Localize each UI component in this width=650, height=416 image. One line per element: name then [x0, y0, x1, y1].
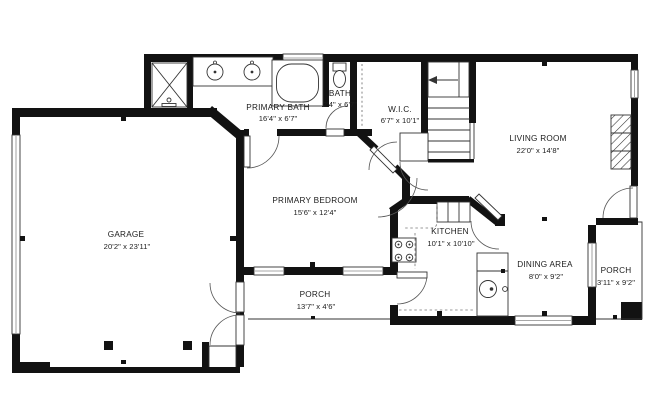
svg-text:GARAGE: GARAGE — [108, 230, 145, 239]
garage-door-icon — [12, 135, 20, 334]
bathtub-icon — [272, 60, 323, 106]
room-label-garage: GARAGE 20'2" x 23'11" — [104, 230, 151, 251]
window-icon — [254, 267, 284, 275]
window-icon — [631, 70, 638, 98]
svg-text:PRIMARY BEDROOM: PRIMARY BEDROOM — [272, 196, 357, 205]
svg-text:10'1" x 10'10": 10'1" x 10'10" — [427, 239, 474, 248]
svg-text:DINING AREA: DINING AREA — [517, 260, 573, 269]
fireplace-icon — [611, 115, 631, 169]
svg-text:PORCH: PORCH — [300, 290, 331, 299]
under-stair-closet — [400, 133, 428, 161]
porch-outline — [209, 222, 642, 367]
svg-text:22'0" x 14'8": 22'0" x 14'8" — [517, 146, 560, 155]
door-garage-porch — [210, 282, 244, 313]
toilet-icon — [333, 63, 346, 88]
svg-text:13'7" x 4'6": 13'7" x 4'6" — [297, 302, 336, 311]
room-label-kitchen: KITCHEN 10'1" x 10'10" — [427, 227, 474, 248]
svg-text:LIVING ROOM: LIVING ROOM — [509, 134, 566, 143]
room-labels: PRIMARY BATH 16'4" x 6'7" BATH 2'4" x 6'… — [104, 89, 636, 311]
svg-text:KITCHEN: KITCHEN — [431, 227, 469, 236]
svg-text:BATH: BATH — [329, 89, 351, 98]
pantry-icon — [437, 202, 470, 222]
room-label-living-room: LIVING ROOM 22'0" x 14'8" — [509, 134, 566, 155]
porch-post-icon — [621, 302, 642, 320]
shower-icon — [152, 63, 187, 107]
window-icon — [343, 267, 383, 275]
svg-text:8'0" x 9'2": 8'0" x 9'2" — [529, 272, 564, 281]
room-label-porch-rear: PORCH 13'7" x 4'6" — [297, 290, 336, 311]
svg-text:3'11" x 9'2": 3'11" x 9'2" — [597, 278, 635, 287]
window-icon — [515, 316, 572, 325]
room-label-primary-bedroom: PRIMARY BEDROOM 15'6" x 12'4" — [272, 196, 357, 217]
room-label-porch-side: PORCH 3'11" x 9'2" — [597, 266, 635, 287]
door-garage-stoop — [210, 315, 244, 345]
room-label-dining-area: DINING AREA 8'0" x 9'2" — [517, 260, 573, 281]
garage-post-icon — [104, 341, 113, 350]
door-bedroom-bath — [244, 136, 279, 168]
window-icon — [588, 243, 596, 287]
room-label-primary-bath: PRIMARY BATH 16'4" x 6'7" — [246, 103, 310, 123]
kitchen-sink-icon — [477, 253, 508, 316]
svg-text:16'4" x 6'7": 16'4" x 6'7" — [259, 114, 298, 123]
stoop-outline — [209, 346, 236, 367]
svg-text:W.I.C.: W.I.C. — [388, 105, 412, 114]
svg-text:20'2" x 23'11": 20'2" x 23'11" — [104, 242, 151, 251]
double-vanity-icon — [193, 57, 273, 86]
svg-text:PRIMARY BATH: PRIMARY BATH — [246, 103, 310, 112]
door-living-porch — [603, 186, 637, 218]
floor-plan: PRIMARY BATH 16'4" x 6'7" BATH 2'4" x 6'… — [0, 0, 650, 416]
door-kitchen-porch — [397, 272, 427, 304]
room-label-wic: W.I.C. 6'7" x 10'1" — [381, 105, 420, 125]
garage-post-icon — [183, 341, 192, 350]
svg-text:2'4" x 6'7": 2'4" x 6'7" — [323, 100, 358, 109]
range-icon — [392, 238, 416, 262]
svg-text:6'7" x 10'1": 6'7" x 10'1" — [381, 116, 420, 125]
svg-text:15'6" x 12'4": 15'6" x 12'4" — [294, 208, 337, 217]
svg-text:PORCH: PORCH — [601, 266, 632, 275]
floor-plan-canvas: PRIMARY BATH 16'4" x 6'7" BATH 2'4" x 6'… — [0, 0, 650, 416]
